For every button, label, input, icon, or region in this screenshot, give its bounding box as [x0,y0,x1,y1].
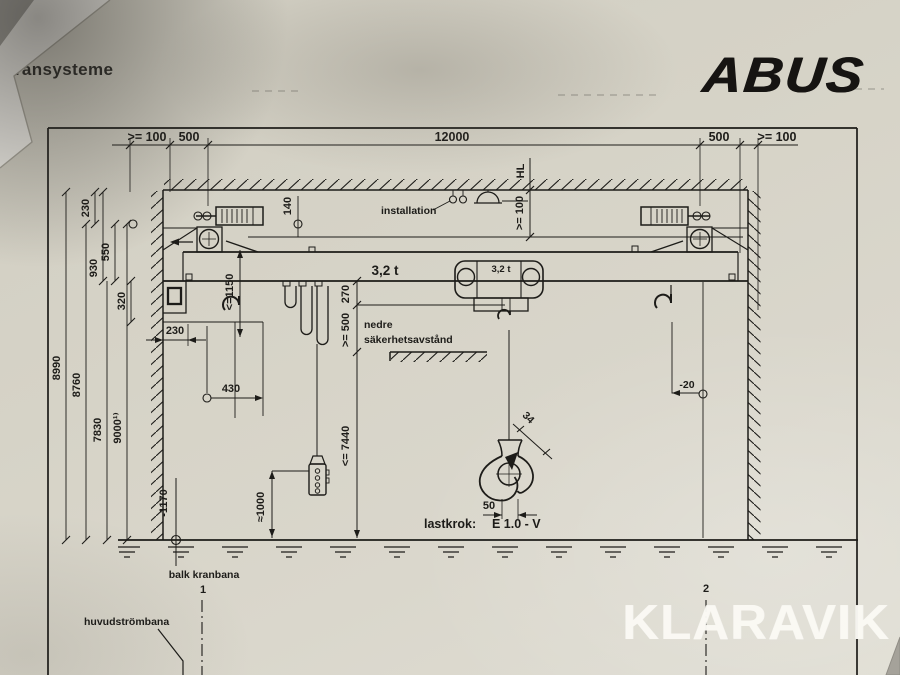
photo-of-crane-technical-drawing: >= 100 500 12000 500 >= 100 230 550 930 … [0,0,900,675]
klaravik-watermark: KLARAVIK [622,599,890,648]
photo-artifacts [0,0,900,675]
